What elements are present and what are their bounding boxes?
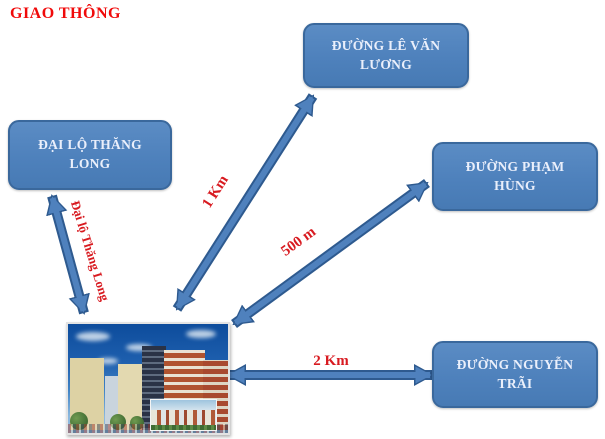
node-duong-nguyen-trai: ĐƯỜNG NGUYỄN TRÃI <box>432 341 598 408</box>
node-label: ĐƯỜNG NGUYỄN TRÃI <box>448 356 582 394</box>
cloud <box>186 330 216 338</box>
node-label: ĐƯỜNG PHẠM HÙNG <box>448 158 582 196</box>
inset-rendering <box>150 399 217 431</box>
inset-trees <box>151 425 216 430</box>
node-label: ĐƯỜNG LÊ VĂN LƯƠNG <box>319 37 453 75</box>
traffic-diagram: GIAO THÔNG <box>0 0 605 439</box>
label-1km: 1 Km <box>199 172 232 211</box>
label-2km: 2 Km <box>313 353 349 369</box>
label-500m: 500 m <box>278 224 319 260</box>
inset-buildings <box>151 410 216 426</box>
building-photo <box>66 322 230 435</box>
node-label: ĐẠI LỘ THĂNG LONG <box>24 136 156 174</box>
node-dai-lo-thang-long: ĐẠI LỘ THĂNG LONG <box>8 120 172 190</box>
cloud <box>76 332 110 341</box>
node-duong-le-van-luong: ĐƯỜNG LÊ VĂN LƯƠNG <box>303 23 469 88</box>
node-duong-pham-hung: ĐƯỜNG PHẠM HÙNG <box>432 142 598 211</box>
arrow-pham-hung <box>234 183 427 324</box>
